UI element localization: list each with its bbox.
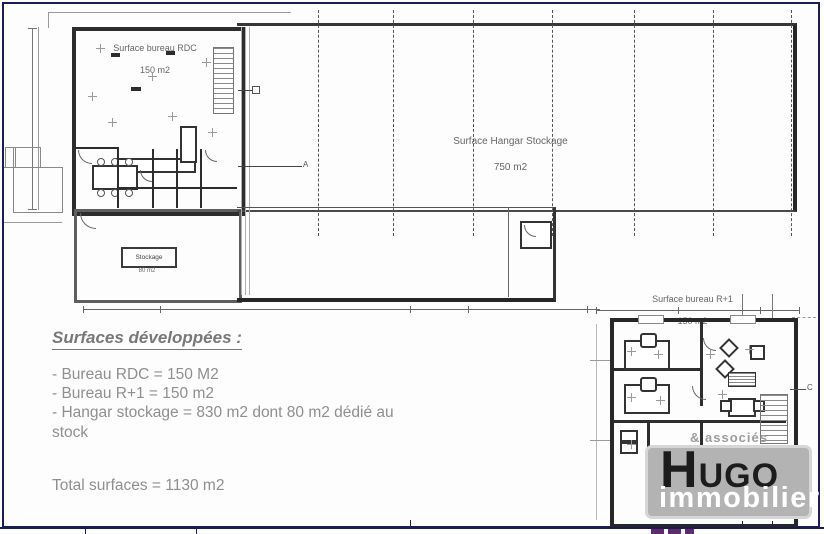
section-line <box>790 389 806 390</box>
partition-wall <box>152 149 154 208</box>
section-line <box>238 90 253 91</box>
chair <box>97 189 105 197</box>
summary-item: - Hangar stockage = 830 m2 dont 80 m2 dé… <box>52 403 404 442</box>
grid-line <box>552 10 553 236</box>
chair <box>125 158 133 166</box>
survey-cross-icon <box>627 393 636 402</box>
section-line <box>238 166 302 167</box>
clipped-text-fragment <box>685 529 694 534</box>
counter <box>180 126 197 163</box>
table-separator <box>410 520 411 529</box>
summary-item: - Bureau R+1 = 150 m2 <box>52 384 432 404</box>
summary-item: - Bureau RDC = 150 M2 <box>52 365 432 385</box>
survey-cross-icon <box>168 112 177 121</box>
survey-cross-icon <box>148 72 157 81</box>
survey-cross-icon <box>96 44 105 53</box>
table-separator <box>85 529 86 534</box>
survey-cross-icon <box>202 58 211 67</box>
stockage-title: Stockage <box>135 254 162 261</box>
section-marker-box <box>252 86 260 94</box>
hangar-plan-area: 750 m2 <box>494 162 527 173</box>
dimension-tick <box>799 307 800 314</box>
grid-line <box>473 10 474 236</box>
exterior-structure <box>13 147 41 168</box>
table-label-box <box>728 372 756 387</box>
grid-line <box>713 10 714 236</box>
section-marker-a: A <box>303 160 308 169</box>
furniture <box>166 51 175 55</box>
stockage-area: 80 m2 <box>134 268 160 274</box>
dimension-tick <box>596 307 597 314</box>
partition-wall <box>76 147 118 149</box>
chair <box>97 158 105 166</box>
hangar-plan-label: Surface Hangar Stockage 750 m2 <box>428 122 593 174</box>
r1-plan-title: Surface bureau R+1 <box>652 294 733 304</box>
survey-cross-icon <box>88 92 97 101</box>
grid-line <box>791 10 792 236</box>
survey-cross-icon <box>654 350 663 359</box>
logo-tagline: & associés <box>690 430 768 445</box>
hangar-plan-title: Surface Hangar Stockage <box>453 136 568 147</box>
construction-line <box>596 324 597 520</box>
summary-total: Total surfaces = 1130 m2 <box>52 476 432 496</box>
table <box>728 398 756 417</box>
window-opening <box>730 315 756 324</box>
section-line <box>4 167 40 168</box>
table-border <box>0 527 824 529</box>
exterior-structure <box>5 147 16 168</box>
logo-brand-sub: immobilier <box>659 484 821 513</box>
stockage-label-box: Stockage <box>121 247 177 268</box>
furniture <box>111 53 120 57</box>
survey-cross-icon <box>656 396 665 405</box>
construction-line <box>590 440 610 441</box>
partition-wall <box>200 149 202 208</box>
clipped-text-fragment <box>651 529 664 534</box>
summary-title: Surfaces développées : <box>52 328 242 350</box>
section-marker-c: C <box>807 383 813 392</box>
dimension-tick <box>28 28 37 29</box>
table-separator <box>742 521 743 527</box>
dimension-tick <box>410 306 411 313</box>
canopy-line <box>48 12 49 28</box>
construction-line <box>4 222 62 223</box>
dimension-tick <box>760 307 761 314</box>
survey-cross-icon <box>706 350 715 359</box>
grid-line <box>318 10 319 236</box>
partition-wall <box>176 149 178 208</box>
grid-line <box>393 10 394 236</box>
agency-logo: HUGO immobilier <box>645 445 812 519</box>
furniture <box>131 87 141 91</box>
summary-block: Surfaces développées : <box>52 328 432 350</box>
dimension-tick <box>678 307 679 314</box>
survey-cross-icon <box>627 347 636 356</box>
table-separator <box>196 529 197 534</box>
rdc-plan-label: Surface bureau RDC 150 m2 <box>90 32 220 76</box>
chair <box>720 400 732 412</box>
grid-line <box>634 10 635 236</box>
construction-line <box>772 294 773 320</box>
table-separator <box>772 521 773 527</box>
survey-cross-icon <box>627 440 636 449</box>
dimension-tick <box>468 306 469 313</box>
partition-wall <box>117 147 119 208</box>
dimension-tick <box>83 306 84 313</box>
dimension-tick <box>587 306 588 313</box>
survey-cross-icon <box>745 345 754 354</box>
monitor <box>640 377 657 392</box>
plan-sheet: Surface bureau RDC 150 m2 Stockage 80 m2… <box>0 0 824 534</box>
rdc-plan-title: Surface bureau RDC <box>113 43 197 53</box>
survey-cross-icon <box>108 118 117 127</box>
window-opening <box>638 315 664 324</box>
canopy-line <box>48 12 291 13</box>
construction-line <box>590 360 610 361</box>
survey-cross-icon <box>718 390 727 399</box>
dimension-tick <box>160 306 161 313</box>
construction-line <box>792 317 816 318</box>
clipped-text-fragment <box>668 529 681 534</box>
staircase-rdc <box>213 47 234 114</box>
exterior-structure <box>13 167 63 213</box>
survey-cross-icon <box>208 128 217 137</box>
monitor <box>640 333 657 348</box>
partition-wall <box>508 207 509 297</box>
dimension-line <box>596 310 800 311</box>
chair <box>125 189 133 197</box>
